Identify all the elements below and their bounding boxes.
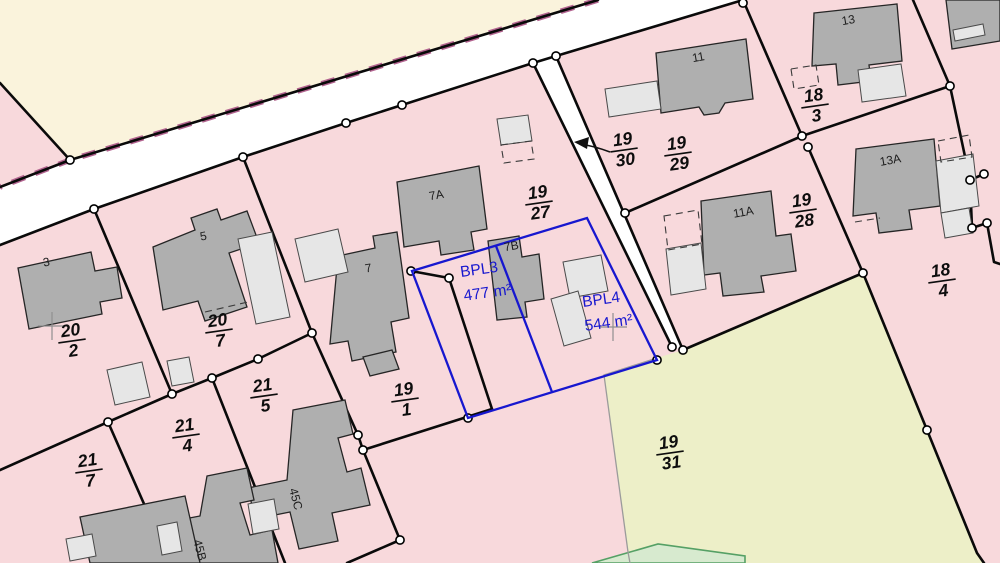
boundary-node — [66, 156, 74, 164]
outbuilding-footprint — [295, 229, 348, 282]
boundary-node — [859, 269, 867, 277]
outbuilding-footprint — [858, 64, 906, 102]
cadastral-map-view[interactable]: 2022072172142151911927193019291831928184… — [0, 0, 1000, 563]
boundary-node — [254, 355, 262, 363]
parcel-number-denominator: 28 — [792, 209, 815, 232]
map-canvas[interactable]: 2022072172142151911927193019291831928184… — [0, 0, 1000, 563]
outbuilding-footprint — [666, 243, 706, 295]
boundary-node — [342, 119, 350, 127]
parcel-number-numerator: 21 — [75, 449, 98, 472]
outbuilding-footprint — [167, 357, 194, 386]
parcel-number-numerator: 21 — [172, 414, 195, 437]
boundary-node — [308, 329, 316, 337]
parcel-number-numerator: 19 — [526, 181, 548, 204]
boundary-node — [621, 209, 629, 217]
boundary-node — [968, 224, 976, 232]
boundary-node — [923, 426, 931, 434]
boundary-node — [208, 374, 216, 382]
boundary-node — [168, 390, 176, 398]
boundary-node — [668, 343, 676, 351]
boundary-node — [90, 205, 98, 213]
parcel-number-numerator: 19 — [665, 132, 687, 155]
outbuilding-footprint — [497, 115, 532, 145]
parcel-number-numerator: 18 — [802, 84, 824, 107]
parcel-number-numerator: 19 — [392, 378, 414, 401]
building-number-13: 13 — [841, 12, 857, 28]
outbuilding-footprint — [248, 499, 279, 534]
outbuilding-footprint — [66, 534, 96, 561]
boundary-node — [946, 82, 954, 90]
boundary-node — [104, 418, 112, 426]
building-number-7B: 7B — [503, 238, 520, 254]
boundary-node — [398, 101, 406, 109]
parcel-number-denominator: 27 — [528, 201, 552, 224]
boundary-node — [445, 274, 453, 282]
boundary-node — [980, 170, 988, 178]
parcel-number-denominator: 29 — [667, 152, 690, 175]
boundary-node — [396, 536, 404, 544]
parcel-number-numerator: 19 — [790, 189, 812, 212]
boundary-node — [966, 176, 974, 184]
boundary-node — [359, 446, 367, 454]
boundary-node — [798, 132, 806, 140]
boundary-node — [354, 431, 362, 439]
parcel-number-numerator: 18 — [929, 259, 951, 282]
boundary-node — [552, 52, 560, 60]
boundary-node — [239, 153, 247, 161]
building-number-7A: 7A — [428, 187, 445, 203]
parcel-number-numerator: 19 — [657, 431, 679, 454]
boundary-node — [983, 219, 991, 227]
outbuilding-footprint — [157, 522, 182, 555]
parcel-number-denominator: 30 — [614, 148, 636, 171]
outbuilding-footprint — [107, 362, 150, 405]
boundary-node — [739, 0, 747, 7]
building-footprint-TR — [946, 0, 1000, 49]
parcel-number-numerator: 20 — [58, 319, 81, 342]
parcel-number-numerator: 19 — [611, 128, 633, 151]
boundary-node — [679, 346, 687, 354]
boundary-node — [529, 59, 537, 67]
parcel-number-denominator: 31 — [660, 451, 682, 474]
outbuilding-footprint — [941, 208, 973, 238]
boundary-node — [804, 143, 812, 151]
parcel-number-numerator: 20 — [205, 309, 228, 332]
parcel-number-numerator: 21 — [250, 374, 273, 397]
